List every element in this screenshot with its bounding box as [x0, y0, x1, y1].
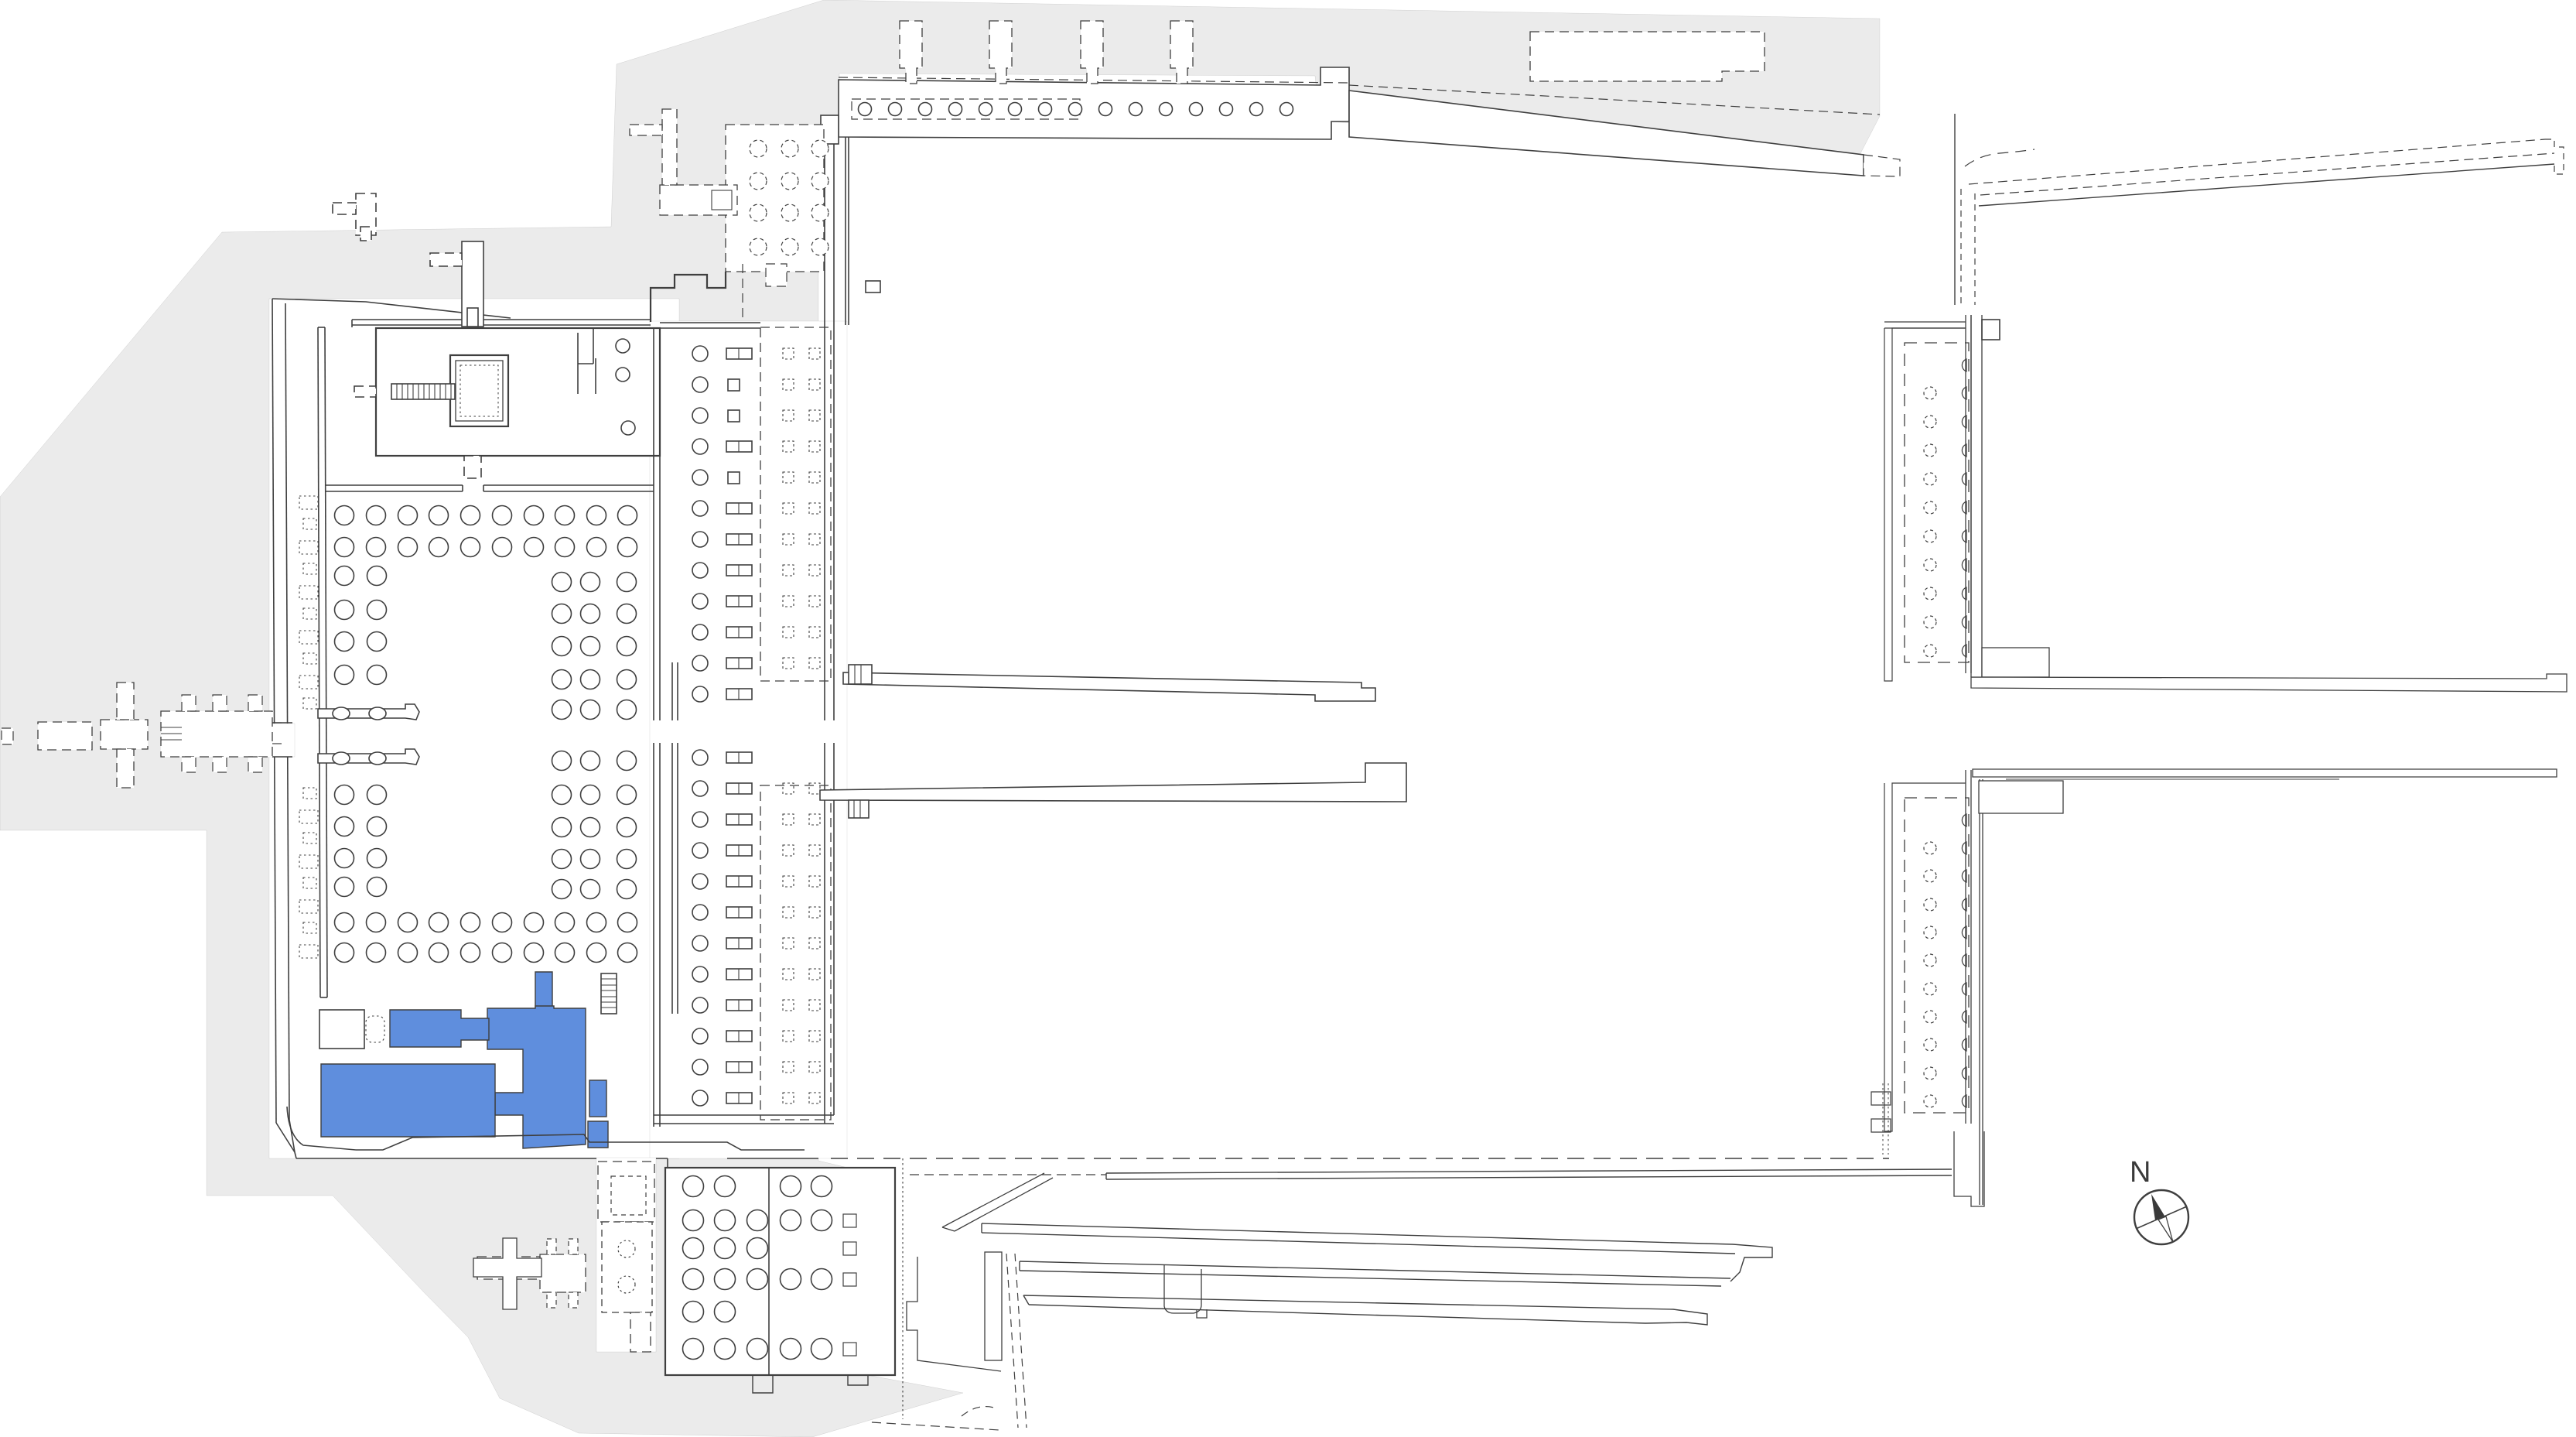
svg-text:N: N: [2130, 1156, 2151, 1189]
